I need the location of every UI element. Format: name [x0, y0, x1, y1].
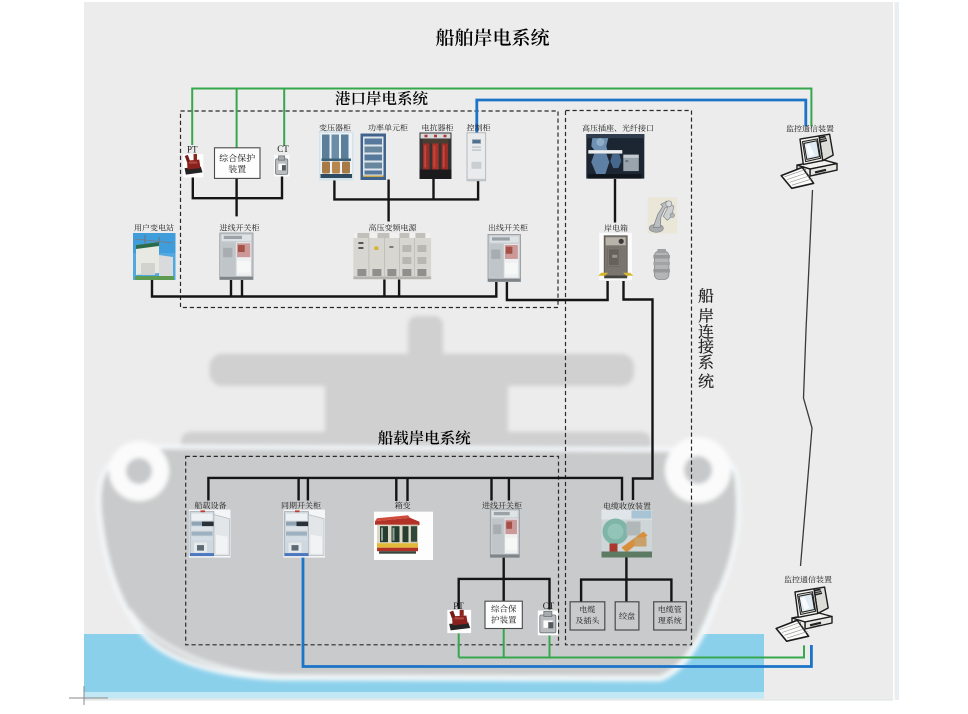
svg-text:PT: PT	[453, 601, 464, 611]
svg-text:CT: CT	[277, 144, 289, 154]
svg-text:CT: CT	[543, 601, 555, 611]
svg-text:PT: PT	[187, 145, 198, 155]
